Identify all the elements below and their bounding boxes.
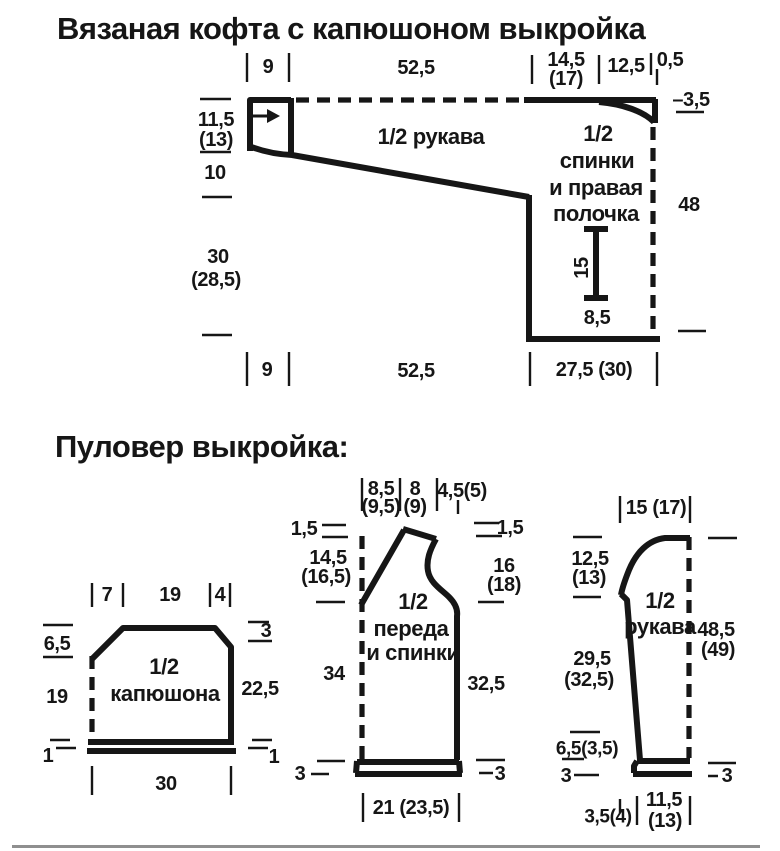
hood-dim-band-left: 1 bbox=[43, 746, 54, 766]
hood-dim-right-height: 22,5 bbox=[241, 679, 278, 699]
pullover_sleeve-label-piece-line2: рукава bbox=[624, 616, 696, 638]
cardigan-dim-cuff-height-alt: (13) bbox=[199, 130, 233, 150]
cardigan-dim-slope-height: 10 bbox=[204, 163, 225, 183]
pullover_body-dim-neck-depth-alt: (16,5) bbox=[301, 567, 351, 587]
cardigan-dim-sleeve-length-top: 52,5 bbox=[397, 58, 434, 78]
pullover_sleeve-dim-full-length-alt: (49) bbox=[701, 640, 735, 660]
cardigan-label-body-line1: 1/2 bbox=[583, 123, 612, 145]
cardigan-dim-sleeve-length-bottom: 52,5 bbox=[397, 361, 434, 381]
hood-label-piece-line2: капюшона bbox=[110, 683, 219, 705]
hood-dim-left-height: 19 bbox=[46, 687, 67, 707]
pullover_body-label-piece-line3: и спинки bbox=[366, 642, 459, 664]
pullover_sleeve-dim-underarm-length-alt: (32,5) bbox=[564, 670, 614, 690]
pullover_sleeve-dim-bottom-offset: 3,5(4) bbox=[584, 808, 631, 827]
pullover_body-dim-band-left: 3 bbox=[295, 764, 306, 784]
hood-dim-corner-left: 6,5 bbox=[44, 634, 71, 654]
cardigan-dim-back-width-alt: (17) bbox=[549, 69, 583, 89]
pullover_body-dim-band-right: 3 bbox=[495, 764, 506, 784]
pullover_body-dim-top-neck-alt: (9,5) bbox=[361, 497, 400, 517]
pullover_body-dim-shoulder-drop-right: 1,5 bbox=[497, 518, 524, 538]
cardigan-dim-side-height: 30 bbox=[207, 247, 228, 267]
pullover_sleeve-dim-cuff-note: 6,5(3,5) bbox=[556, 740, 618, 759]
pullover_sleeve-dim-band-left: 3 bbox=[561, 766, 572, 786]
pullover_body-label-piece-line2: переда bbox=[374, 618, 449, 640]
pullover_sleeve-dim-cuff-width: 11,5 bbox=[646, 790, 682, 810]
pullover-sleeve-outline-path bbox=[621, 538, 692, 774]
cardigan-dim-neck-drop: –3,5 bbox=[672, 90, 709, 110]
cardigan-dim-cuff-width-top: 9 bbox=[263, 57, 274, 77]
cardigan-dim-pocket-offset: 8,5 bbox=[584, 308, 611, 328]
pullover_sleeve-dim-full-length: 48,5 bbox=[697, 620, 734, 640]
cardigan-dim-body-width-bottom: 27,5 (30) bbox=[556, 360, 632, 380]
hood-label-piece-line1: 1/2 bbox=[149, 656, 178, 678]
cardigan-dim-cuff-height: 11,5 bbox=[198, 110, 234, 130]
hood-dim-top-middle: 19 bbox=[159, 585, 180, 605]
cardigan-dim-neck-step: 0,5 bbox=[657, 50, 684, 70]
bottom-divider bbox=[12, 845, 760, 848]
cardigan-dim-body-height: 48 bbox=[678, 195, 699, 215]
cardigan-label-body-line2: спинки bbox=[560, 150, 634, 172]
hood-dim-band-right: 1 bbox=[269, 747, 280, 767]
pullover_body-dim-shoulder-drop-left: 1,5 bbox=[291, 519, 318, 539]
cardigan-dim-pocket-height: 15 bbox=[572, 257, 592, 278]
pullover_body-dim-side-left: 34 bbox=[323, 664, 344, 684]
hood-dim-top-left: 7 bbox=[102, 585, 113, 605]
cardigan-dim-shoulder-width: 12,5 bbox=[607, 56, 644, 76]
pullover_sleeve-dim-top-width: 15 (17) bbox=[626, 498, 687, 518]
pullover_body-dim-armhole-height-alt: (18) bbox=[487, 575, 521, 595]
cardigan-label-sleeve: 1/2 рукава bbox=[378, 126, 485, 148]
cardigan-dim-back-width: 14,5 bbox=[547, 50, 584, 70]
pullover_sleeve-dim-cap-height-alt: (13) bbox=[572, 568, 606, 588]
cardigan-label-body-line4: полочка bbox=[553, 203, 639, 225]
cardigan-dim-side-height-alt: (28,5) bbox=[191, 270, 241, 290]
pullover_body-dim-bottom-width: 21 (23,5) bbox=[373, 798, 449, 818]
pullover_body-dim-side-right: 32,5 bbox=[467, 674, 504, 694]
pullover_sleeve-dim-band-right: 3 bbox=[722, 766, 733, 786]
knit-direction-arrowhead-icon bbox=[267, 109, 280, 123]
cardigan-dim-cuff-width-bottom: 9 bbox=[262, 360, 273, 380]
pullover_sleeve-dim-cap-height: 12,5 bbox=[571, 549, 608, 569]
pullover_body-label-piece-line1: 1/2 bbox=[398, 591, 427, 613]
hood-dim-bottom-width: 30 bbox=[155, 774, 176, 794]
pullover_body-dim-top-armhole: 4,5(5) bbox=[437, 481, 487, 501]
pullover_body-dim-neck-depth: 14,5 bbox=[309, 548, 346, 568]
hood-dim-corner-right: 3 bbox=[261, 621, 272, 641]
pullover_sleeve-label-piece-line1: 1/2 bbox=[645, 590, 674, 612]
pullover_sleeve-dim-cuff-width-alt: (13) bbox=[648, 811, 682, 831]
pullover_body-dim-armhole-height: 16 bbox=[493, 556, 514, 576]
pullover_body-dim-top-shoulder-alt: (9) bbox=[403, 497, 426, 517]
cardigan-label-body-line3: и правая bbox=[549, 177, 643, 199]
pattern-page: Вязаная кофта с капюшоном выкройка Пулов… bbox=[0, 0, 780, 851]
pullover_sleeve-dim-underarm-length: 29,5 bbox=[573, 649, 610, 669]
hood-dim-top-right: 4 bbox=[215, 585, 226, 605]
